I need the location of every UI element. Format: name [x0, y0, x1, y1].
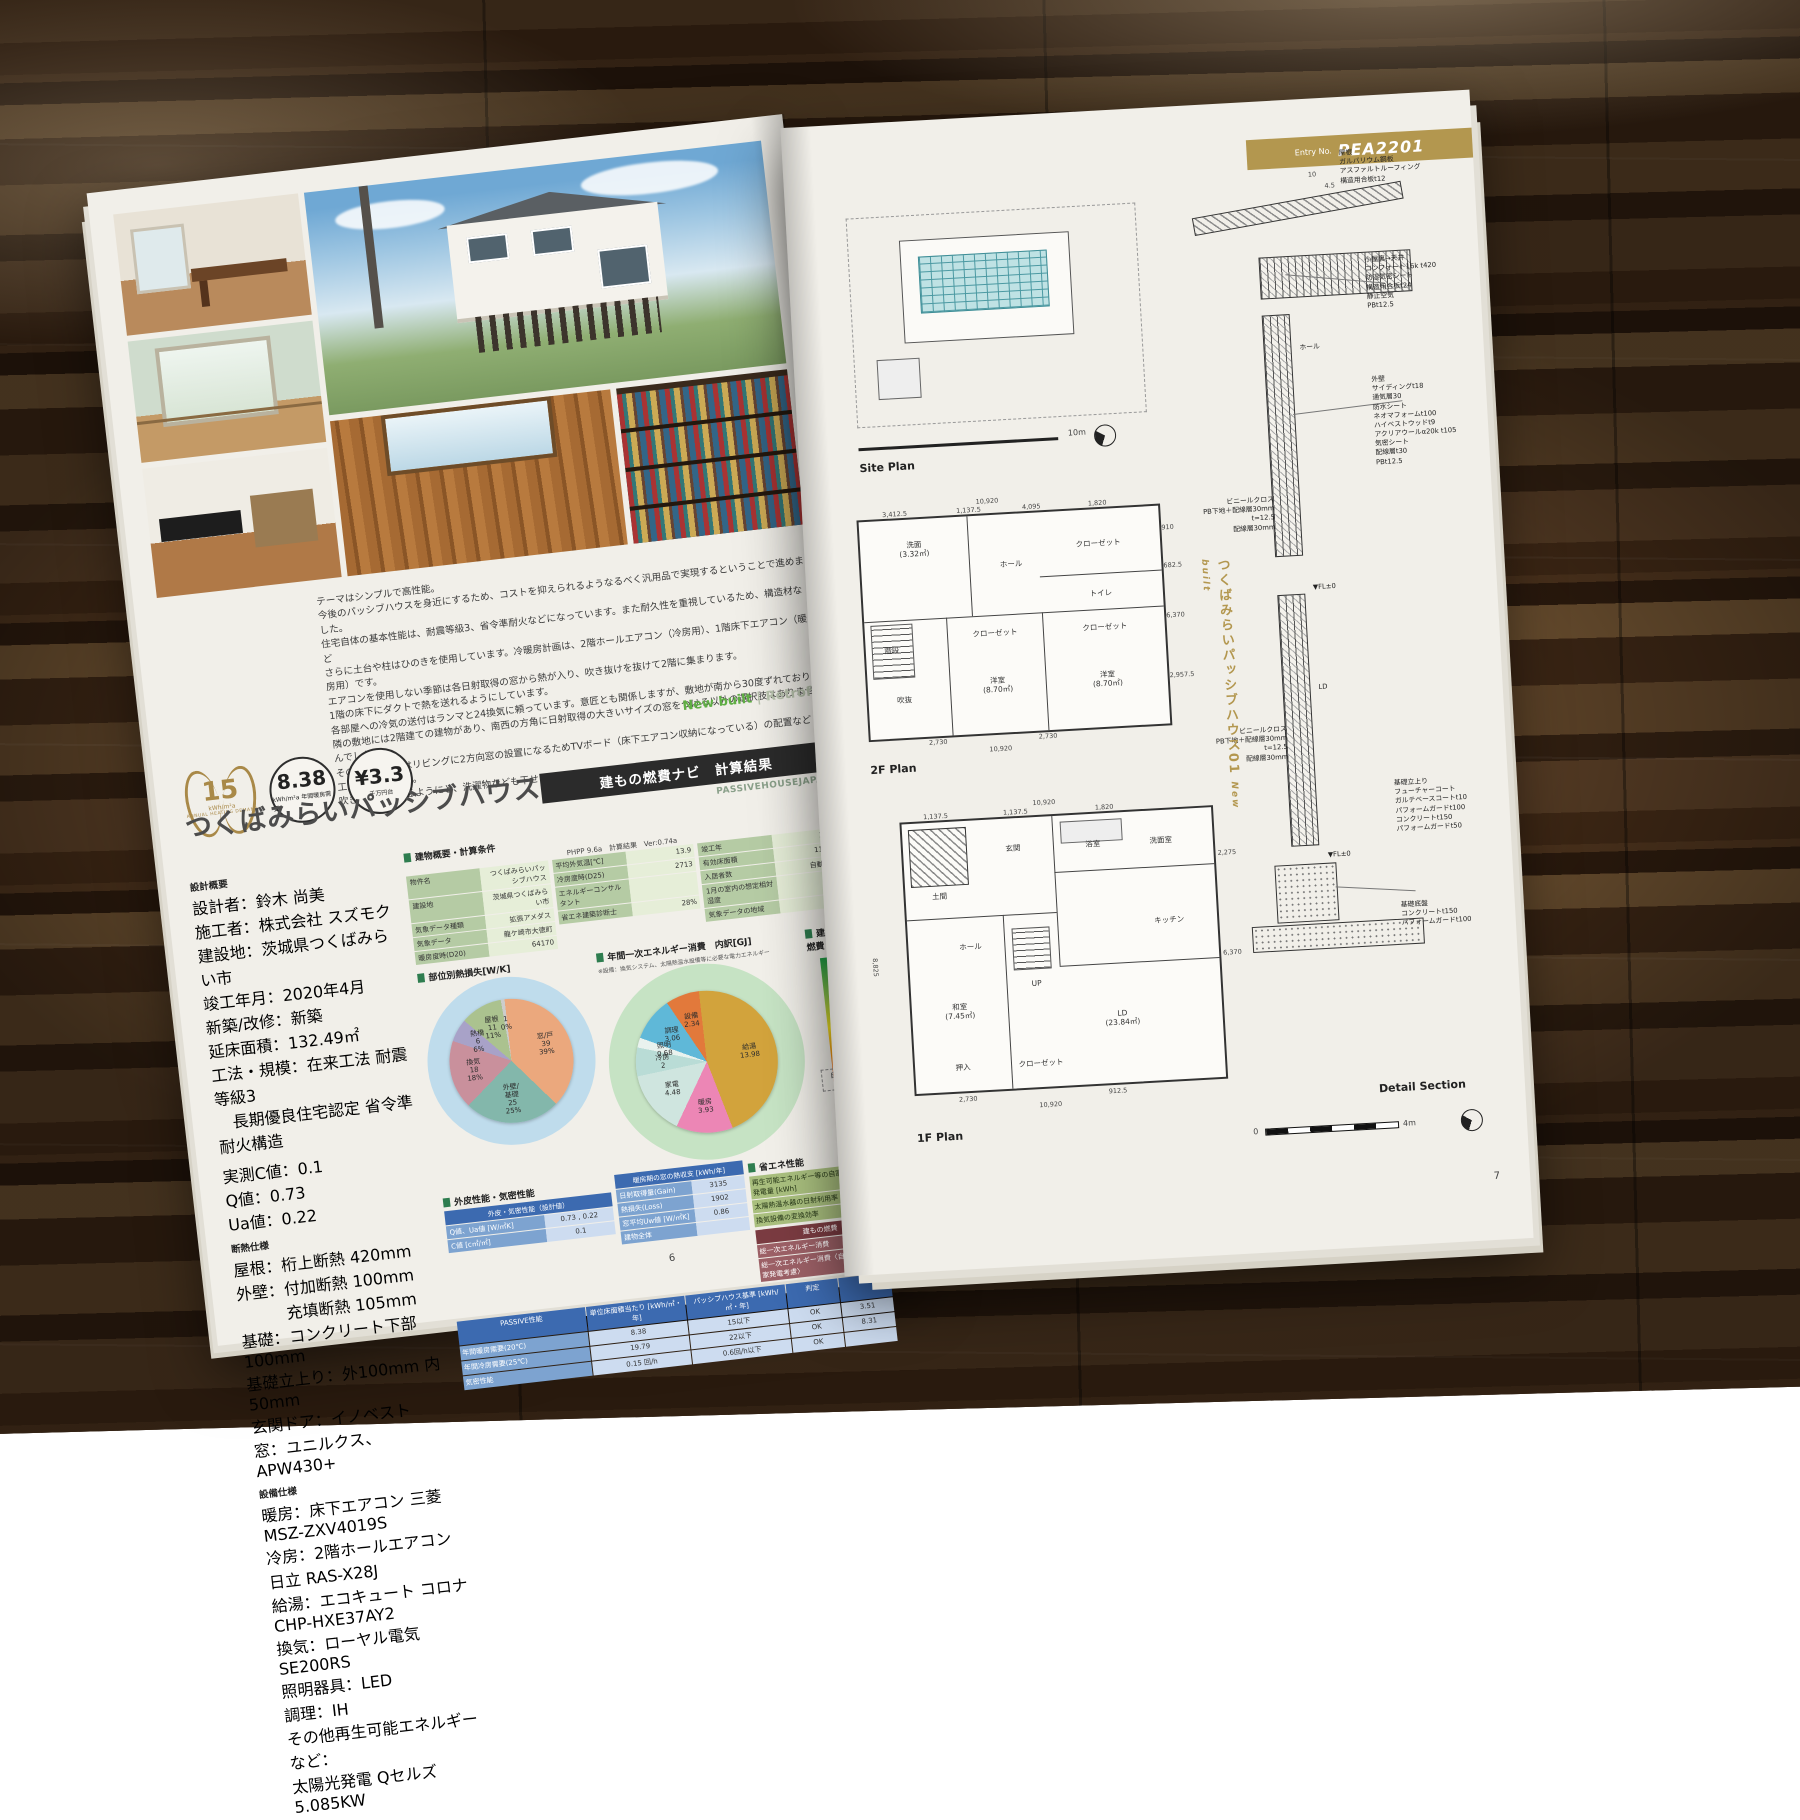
pie-slice-label: 家電 4.48	[664, 1080, 681, 1098]
plan-1f-label: 1F Plan	[917, 1130, 964, 1146]
insulation-list: 屋根：桁上断熱 420mm 外壁：付加断熱 100mm 充填断熱 105mm 基…	[232, 1234, 462, 1481]
detail-scale-zero: 0	[1253, 1127, 1259, 1136]
ld-label: LD	[1318, 682, 1328, 692]
north-arrow-icon	[1094, 424, 1117, 447]
window-balance-table: 暖房期の窓の熱収支 [kWh/年] 日射取得量(Gain)3135 熱損失(Lo…	[614, 1160, 756, 1297]
site-plan-drawing	[846, 202, 1147, 428]
north-arrow-icon	[1460, 1109, 1483, 1132]
foundation-stem	[1274, 862, 1339, 923]
detail-scale-label: 4m	[1403, 1118, 1416, 1128]
stairs-1f	[1011, 926, 1051, 970]
solar-panel-array	[917, 249, 1050, 313]
foundation-stem-annotation: 基礎立上り フューチャーコート ガルテベースコートt10 パフォームガードt10…	[1394, 773, 1507, 834]
photo-collage	[113, 141, 805, 598]
detail-section-drawing: 屋根 ガルバリウム鋼板 アスファルトルーフィング 構造用合板t12 10 4.5…	[1189, 155, 1507, 1108]
pie-slice-label: 給湯 13.98	[739, 1042, 761, 1060]
right-page-number: 7	[1493, 1171, 1500, 1182]
detail-scale-bar	[1265, 1121, 1399, 1135]
pie-slice-label: 外壁/ 基礎 25 25%	[502, 1082, 522, 1116]
energy-pie-ring: 給湯 13.98暖房 3.93家電 4.48冷房 2照明 0.68調理 3.06…	[598, 953, 815, 1170]
floor-plan-1f: 土間 玄関 ホール 和室 (7.45㎡) 押入 クローゼット 洗面室 浴室 キッ…	[899, 805, 1228, 1096]
photo-house-exterior	[304, 141, 786, 416]
spec-column: 設計概要 設計者：鈴木 尚美 施工者：株式会社 スズモク 建設地：茨城県つくばみ…	[188, 851, 441, 1300]
attic-annotation: 小屋裏→天井 コンフォート16k t420 防湿気密シート 構造用合板t24 静…	[1364, 250, 1477, 311]
calculation-results-column: 建物概要・計算条件 PHPP 9.6a 計算結果 Ver:0.74a 物件名つく…	[403, 800, 885, 1275]
wall-assembly-1f	[1277, 594, 1319, 847]
hall-label: ホール	[1299, 342, 1320, 352]
roof-annotation: 屋根 ガルバリウム鋼板 アスファルトルーフィング 構造用合板t12	[1338, 142, 1460, 185]
pie-slice-label: 換気 18 18%	[465, 1057, 483, 1083]
site-scale-label: 10m	[1068, 428, 1086, 438]
roof-assembly	[1192, 181, 1404, 236]
photo-window-room	[128, 321, 327, 463]
equipment-list: 暖房：床下エアコン 三菱 MSZ-ZXV4019S 冷房：2階ホールエアコン 日…	[260, 1480, 500, 1817]
site-shed	[877, 358, 922, 400]
pie-slice-label: 窓/戸 39 39%	[536, 1031, 555, 1057]
envelope-table: 外皮性能・気密性能 外皮・気密性能（設計値） Q値、Ua値 [W/㎡K]0.73…	[442, 1176, 623, 1317]
photo-bookshelf	[616, 369, 805, 543]
heat-loss-pie-chart: 窓/戸 39 39%外壁/ 基礎 25 25%換気 18 18%熱橋 6 6%屋…	[443, 992, 580, 1129]
photo-skylight-loft	[330, 389, 628, 576]
floor-plan-2f: 洗面 (3.32㎡) 吹抜 ホール クローゼット トイレ 洋室 (8.70㎡) …	[856, 504, 1172, 743]
plan-2f-label: 2F Plan	[870, 762, 917, 778]
foundation-slab-annotation: 基礎底盤 コンクリートt150 パフォームガードt100	[1401, 895, 1512, 929]
pie-slice-label: 1 0%	[500, 1014, 513, 1031]
left-page-number: 6	[668, 1253, 676, 1265]
interior-finish-annotation-2f: ビニールクロス PB下地＋配線層30mm t=12.5 配線層30mm	[1182, 495, 1276, 537]
photo-living-room	[142, 448, 342, 598]
wall-annotation: 外壁 サイディングt18 通気層30 防水シート ネオマフォームt100 ハイベ…	[1371, 369, 1486, 467]
pie-slice-label: 冷房 2	[655, 1053, 671, 1071]
fl-mark-1f: ▼FL±0	[1328, 849, 1351, 859]
heat-loss-pie-ring: 窓/戸 39 39%外壁/ 基礎 25 25%換気 18 18%熱橋 6 6%屋…	[419, 968, 605, 1154]
pie-slice-label: 照明 0.68	[656, 1041, 673, 1059]
fl-mark-2f: ▼FL±0	[1313, 582, 1336, 592]
site-scale-line	[858, 437, 1058, 451]
doma-tile-hatch	[908, 827, 969, 888]
pie-slice-label: 熱橋 6 6%	[470, 1029, 487, 1055]
pie-slice-label: 設備 2.34	[683, 1012, 700, 1030]
site-plan-label: Site Plan	[859, 459, 915, 475]
pie-slice-label: 屋根 11 11%	[483, 1015, 501, 1041]
magazine-right-page: Entry No. PEA2201 10m Site Plan 洗面 (3.32…	[780, 90, 1533, 1277]
design-overview-list: 設計者：鈴木 尚美 施工者：株式会社 スズモク 建設地：茨城県つくばみらい市 竣…	[191, 873, 426, 1159]
entry-number-label: Entry No.	[1295, 146, 1333, 157]
photo-dining-room	[113, 193, 312, 335]
energy-pie-chart: 給湯 13.98暖房 3.93家電 4.48冷房 2照明 0.68調理 3.06…	[628, 983, 785, 1140]
pie-slice-label: 調理 3.06	[663, 1026, 680, 1044]
pie-slice-label: 暖房 3.93	[697, 1097, 714, 1115]
